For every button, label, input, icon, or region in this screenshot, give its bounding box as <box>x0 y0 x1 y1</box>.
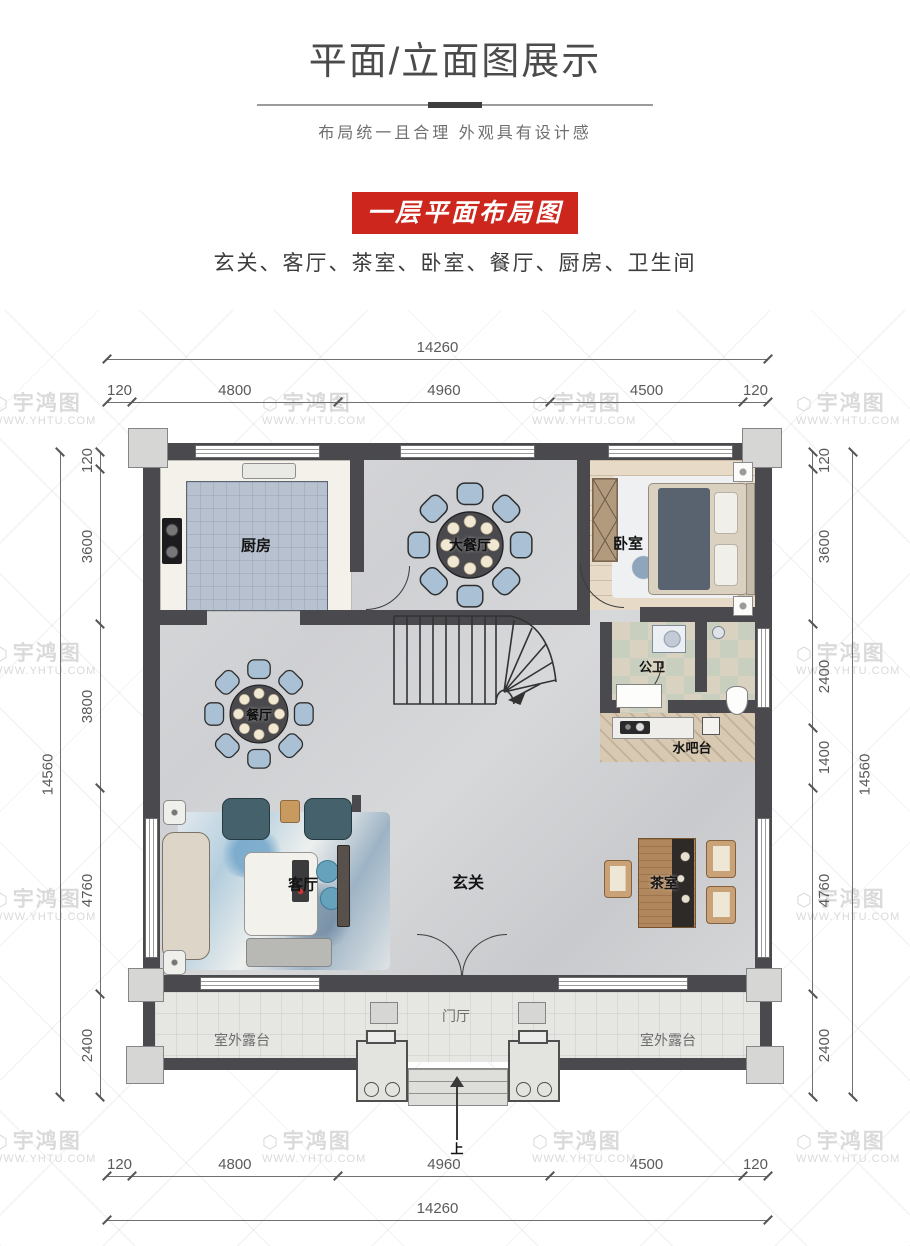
washing-machine <box>652 625 686 653</box>
dim-segment: 1400 <box>812 728 837 788</box>
pillar-cap <box>366 1030 396 1044</box>
dim-left-total: 14560 <box>36 452 61 1097</box>
watermark-url: WWW.YHTU.COM <box>796 415 910 427</box>
tea-chair <box>604 860 632 898</box>
waterbar-fixture <box>702 717 720 735</box>
rooms-list: 玄关、客厅、茶室、卧室、餐厅、厨房、卫生间 <box>0 247 910 277</box>
label-dining: 餐厅 <box>246 705 272 724</box>
watermark-logo-icon: ⬡ <box>0 644 10 664</box>
column-terrace-left <box>126 1046 164 1084</box>
dim-right-total: 14560 <box>852 452 877 1097</box>
floor-banner: 一层平面布局图 <box>352 192 578 234</box>
pillar-base-circle <box>537 1082 552 1097</box>
tea-chair <box>706 886 736 924</box>
column-mid-left <box>128 968 164 1002</box>
label-big-dining: 大餐厅 <box>449 535 491 555</box>
label-waterbar: 水吧台 <box>672 738 711 757</box>
label-terrace-left: 室外露台 <box>214 1030 270 1050</box>
watermark-logo-icon: ⬡ <box>0 1132 10 1152</box>
wall-kitchen-bottom-a <box>143 610 207 625</box>
window-dining <box>400 445 535 458</box>
page: ⬡宇鸿图WWW.YHTU.COM⬡宇鸿图WWW.YHTU.COM⬡宇鸿图WWW.… <box>0 0 910 1246</box>
dim-segment: 14560 <box>36 452 61 1097</box>
watermark-url: WWW.YHTU.COM <box>796 1153 910 1165</box>
dim-left-segments: 120 3600 3800 4760 2400 <box>76 452 101 1097</box>
watermark-logo-icon: ⬡ <box>262 1132 280 1152</box>
dim-right-segments: 120 3600 2400 1400 4760 2400 <box>812 452 837 1097</box>
dim-segment: 2400 <box>76 994 101 1098</box>
entry-steps <box>408 1068 508 1106</box>
staircase <box>392 614 560 710</box>
dim-segment: 120 <box>743 378 768 403</box>
label-kitchen: 厨房 <box>241 535 271 556</box>
watermark-brand: 宇鸿图 <box>553 1130 622 1153</box>
column-terrace-right <box>746 1046 784 1084</box>
entry-bracket-right <box>518 1002 546 1024</box>
dim-segment: 4800 <box>132 1152 338 1177</box>
window-kitchen <box>195 445 320 458</box>
watermark-brand: 宇鸿图 <box>13 392 82 415</box>
window-living-left <box>145 818 158 958</box>
label-bath: 公卫 <box>639 657 665 676</box>
dim-segment: 120 <box>107 378 132 403</box>
shower-head <box>712 626 725 639</box>
label-living: 客厅 <box>288 874 318 895</box>
dim-bottom-total: 14260 <box>107 1196 768 1221</box>
nightstand <box>733 596 753 616</box>
column-top-left <box>128 428 168 468</box>
dim-segment: 4500 <box>550 378 743 403</box>
dining-table-large: 大餐厅 <box>406 481 534 609</box>
window-bedroom <box>608 445 733 458</box>
ottoman <box>316 860 339 883</box>
window-bottom-right <box>558 977 688 990</box>
watermark-brand: 宇鸿图 <box>13 1130 82 1153</box>
sofa <box>162 832 210 960</box>
window-bath-right <box>757 628 770 708</box>
watermark-url: WWW.YHTU.COM <box>0 415 162 427</box>
armchair <box>304 798 352 840</box>
watermark-logo-icon: ⬡ <box>796 394 814 414</box>
waterbar-stove-icon <box>620 721 650 734</box>
dim-segment: 2400 <box>812 994 837 1098</box>
watermark-logo-icon: ⬡ <box>0 394 10 414</box>
entry-bracket-left <box>370 1002 398 1024</box>
nightstand <box>733 462 753 482</box>
label-tea-room: 茶室 <box>650 873 678 893</box>
entry-pillar-left <box>356 1040 408 1102</box>
label-foyer: 玄关 <box>452 869 484 893</box>
bed-pillow <box>714 492 738 534</box>
watermark-brand: 宇鸿图 <box>817 392 886 415</box>
page-subtitle: 布局统一且合理 外观具有设计感 <box>0 119 910 143</box>
dim-segment: 14560 <box>852 452 877 1097</box>
pillar-base-circle <box>385 1082 400 1097</box>
dim-segment: 120 <box>107 1152 132 1177</box>
dim-segment: 4500 <box>550 1152 743 1177</box>
pillar-cap <box>518 1030 548 1044</box>
up-arrow <box>456 1082 458 1140</box>
watermark: ⬡宇鸿图WWW.YHTU.COM <box>796 1130 910 1165</box>
wall-dining-bedroom <box>577 460 590 625</box>
dim-segment: 4800 <box>132 378 338 403</box>
dining-table-small: 餐厅 <box>203 658 315 770</box>
watermark-logo-icon: ⬡ <box>796 1132 814 1152</box>
kitchen-sink <box>242 463 296 479</box>
dim-segment: 2400 <box>812 624 837 728</box>
dim-segment: 120 <box>812 452 837 469</box>
dim-segment: 120 <box>743 1152 768 1177</box>
dim-segment: 4760 <box>812 788 837 993</box>
page-title: 平面/立面图展示 <box>0 30 910 85</box>
wall-kitchen-dining <box>350 460 364 572</box>
entry-pillar-right <box>508 1040 560 1102</box>
watermark-url: WWW.YHTU.COM <box>532 415 702 427</box>
end-table <box>163 800 186 825</box>
column-mid-right <box>746 968 782 1002</box>
floor-terrace <box>155 992 760 1062</box>
dim-segment: 4960 <box>338 378 551 403</box>
toilet <box>726 686 748 715</box>
label-entry-hall: 门厅 <box>442 1006 470 1026</box>
side-table <box>280 800 300 823</box>
wall-bath-divider <box>695 622 707 692</box>
bathroom-vanity <box>616 684 662 708</box>
watermark-brand: 宇鸿图 <box>283 1130 352 1153</box>
watermark-logo-icon: ⬡ <box>0 890 10 910</box>
dim-segment: 3800 <box>76 624 101 788</box>
label-terrace-right: 室外露台 <box>640 1030 696 1050</box>
bed-headboard <box>746 483 755 595</box>
dim-top-segments: 120 4800 4960 4500 120 <box>107 378 768 403</box>
window-tea-right <box>757 818 770 958</box>
watermark-url: WWW.YHTU.COM <box>262 415 432 427</box>
pillar-base-circle <box>516 1082 531 1097</box>
label-bedroom: 卧室 <box>613 533 643 554</box>
dim-segment: 4960 <box>338 1152 551 1177</box>
dim-segment: 14260 <box>107 335 768 360</box>
dim-segment: 3600 <box>812 469 837 624</box>
bed-pillow <box>714 544 738 586</box>
dim-segment: 14260 <box>107 1196 768 1221</box>
title-divider-accent <box>428 102 482 108</box>
console-cabinet <box>337 845 350 927</box>
bed-blanket <box>658 488 710 590</box>
watermark-brand: 宇鸿图 <box>817 1130 886 1153</box>
end-table <box>163 950 186 975</box>
stove <box>162 518 182 564</box>
dim-segment: 3600 <box>76 469 101 624</box>
watermark-logo-icon: ⬡ <box>532 1132 550 1152</box>
dim-bottom-segments: 120 4800 4960 4500 120 <box>107 1152 768 1177</box>
up-arrow-head <box>450 1076 464 1087</box>
dim-segment: 4760 <box>76 788 101 993</box>
window-bottom-left <box>200 977 320 990</box>
bench <box>246 938 332 967</box>
watermark: ⬡宇鸿图WWW.YHTU.COM <box>796 392 910 427</box>
wall-kitchen-bottom-b <box>300 610 364 625</box>
pillar-base-circle <box>364 1082 379 1097</box>
armchair <box>222 798 270 840</box>
tea-chair <box>706 840 736 878</box>
dim-top-total: 14260 <box>107 335 768 360</box>
